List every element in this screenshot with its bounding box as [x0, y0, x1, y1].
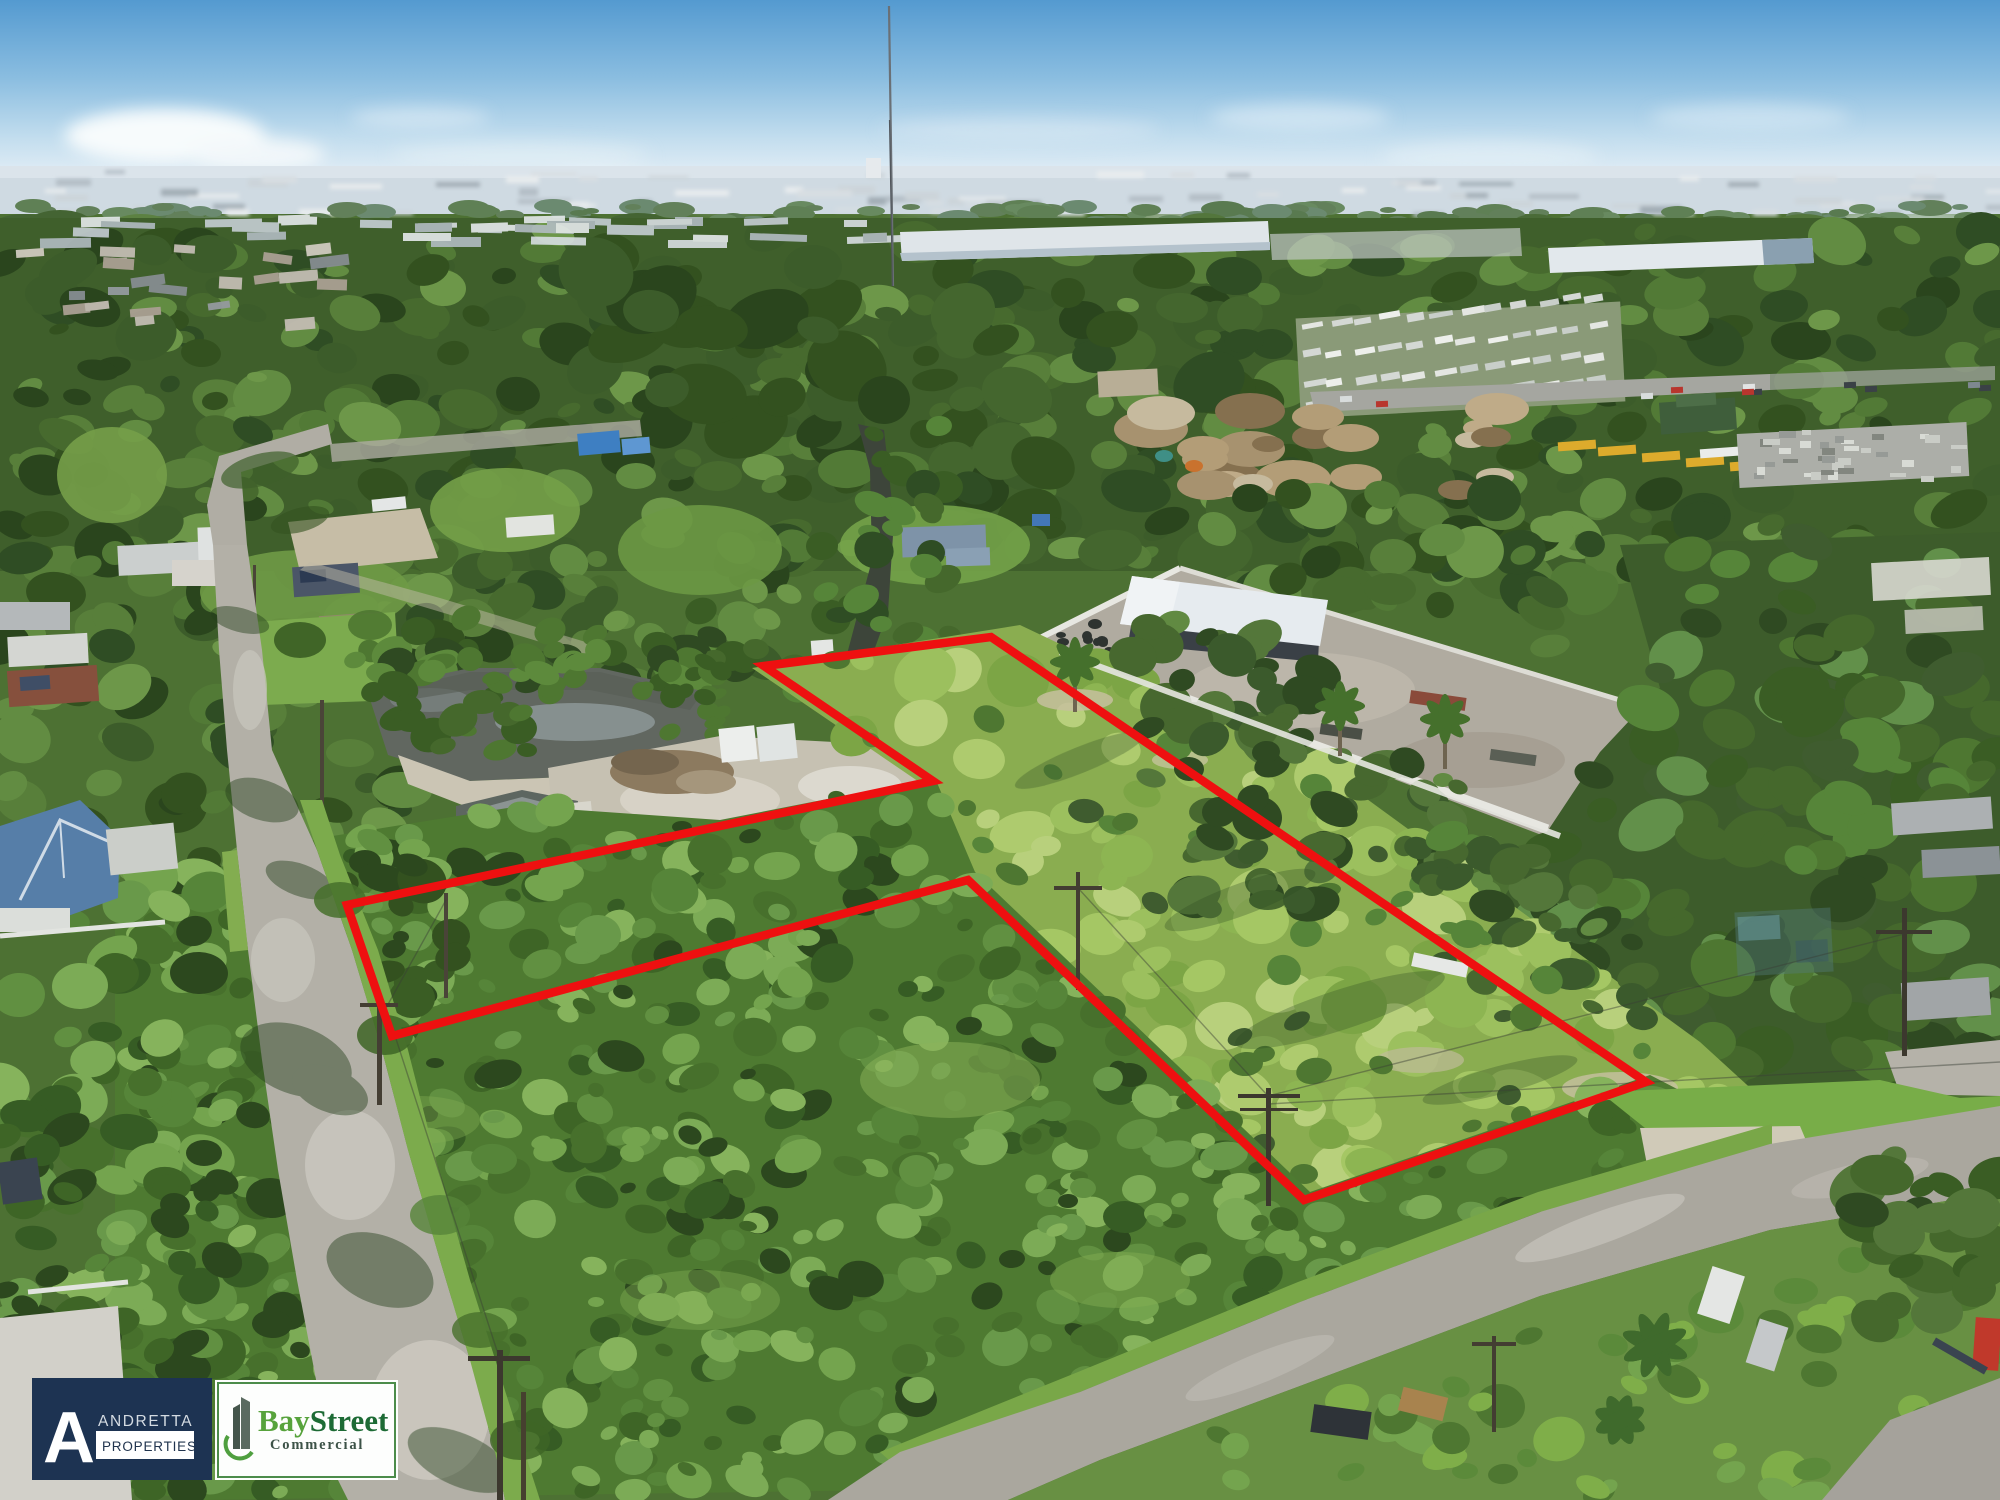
- svg-text:PROPERTIES: PROPERTIES: [102, 1439, 197, 1454]
- svg-text:BayStreet: BayStreet: [258, 1403, 389, 1438]
- svg-text:ANDRETTA: ANDRETTA: [98, 1413, 193, 1430]
- svg-text:A: A: [43, 1398, 95, 1478]
- svg-text:Commercial: Commercial: [270, 1437, 364, 1453]
